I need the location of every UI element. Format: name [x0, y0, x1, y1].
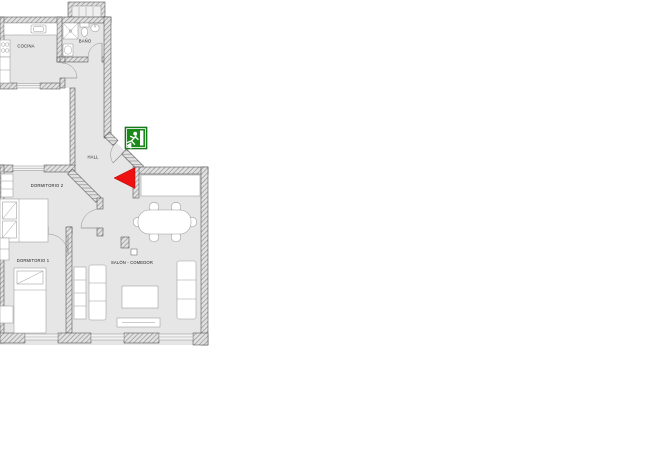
wall-salon-top — [134, 167, 208, 174]
window-kitchen — [17, 84, 40, 89]
dorm1-bed — [14, 268, 46, 333]
wall-kitchen-bottom-b — [40, 83, 60, 89]
wall-kitchen-bottom-a — [0, 83, 17, 89]
shaft-bump — [68, 2, 105, 17]
kitchen-counter — [4, 23, 57, 35]
wall-bottom-c — [124, 333, 159, 343]
wall-bottom-a — [0, 333, 25, 343]
wall-corridor-left — [70, 88, 75, 166]
sofa-left — [89, 265, 106, 320]
wall-dorm1-right — [66, 227, 72, 333]
shaft-grille — [72, 6, 101, 17]
tv-bench — [117, 318, 160, 327]
lightwell — [0, 88, 75, 166]
label-dormitorio1: DORMITORIO 1 — [17, 258, 50, 263]
wall-bottom-b — [58, 333, 91, 343]
label-salon: SALÓN - COMEDOR — [111, 260, 153, 265]
label-dormitorio2: DORMITORIO 2 — [31, 183, 64, 188]
stove — [0, 40, 10, 57]
sofa-right — [177, 261, 196, 319]
label-hall: HALL — [87, 155, 99, 160]
toilet — [80, 23, 89, 36]
floor-plan-drawing: COCINA BAÑO HALL DORMITORIO 2 DORMITORIO… — [0, 0, 650, 450]
wall-dorm2-right-a — [97, 198, 103, 209]
shower — [63, 23, 78, 39]
exit-door-glyph — [140, 131, 143, 146]
wall-salon-nub — [121, 237, 129, 248]
dining-table — [138, 210, 191, 234]
wall-kitchen-door-jamb — [60, 57, 65, 62]
window-dorm1 — [25, 334, 58, 340]
wall-dorm2-right-b — [97, 228, 103, 236]
sideboard — [141, 175, 200, 196]
label-cocina: COCINA — [17, 44, 34, 49]
window-salon-right — [159, 334, 193, 340]
wall-corridor-right — [104, 17, 111, 138]
washbasin-unit — [63, 44, 73, 56]
coffee-table — [122, 286, 158, 308]
window-dorm2 — [13, 166, 44, 171]
bath-sink — [91, 24, 99, 31]
column — [131, 249, 137, 255]
dorm1-nightstand — [0, 306, 13, 323]
dorm2-wardrobe — [1, 174, 13, 197]
dorm2-bed — [0, 199, 48, 242]
wall-bath-left — [57, 17, 62, 62]
floor-plan-page: COCINA BAÑO HALL DORMITORIO 2 DORMITORIO… — [0, 0, 650, 450]
wall-right — [201, 167, 208, 345]
label-bano: BAÑO — [79, 39, 92, 44]
emergency-exit-sign — [125, 127, 147, 149]
window-salon-left — [91, 334, 124, 340]
wall-bottom-d — [193, 333, 208, 345]
wall-corridor-left-upper — [60, 78, 65, 88]
wall-top — [0, 17, 111, 23]
